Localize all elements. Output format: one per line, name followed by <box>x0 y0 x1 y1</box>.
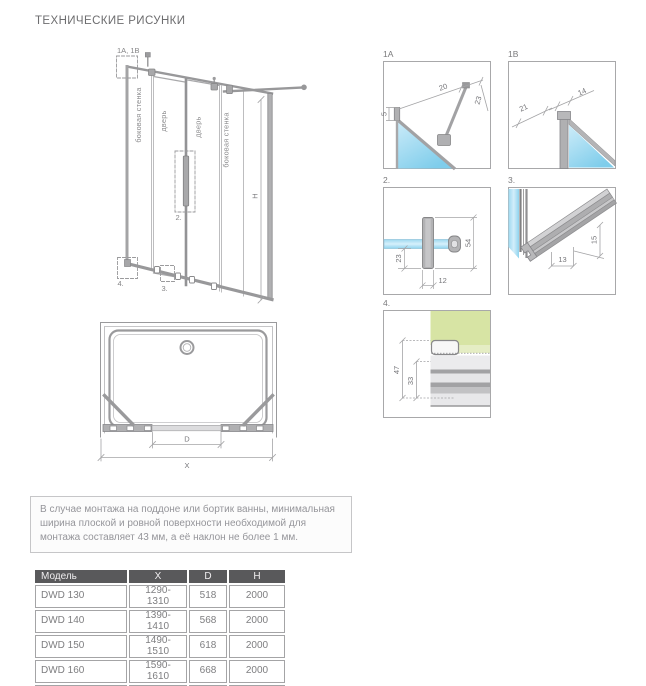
detail-4: 4. 47 <box>383 298 491 418</box>
bottom-rail <box>127 264 272 300</box>
technical-drawing-page: ТЕХНИЧЕСКИЕ РИСУНКИ <box>0 0 646 686</box>
front-view-drawing: H 1A, 1B 2. 3. 4. боковая стенка дверь д… <box>117 46 307 303</box>
cell-model: DWD 130 <box>35 585 127 608</box>
cell-h: 2000 <box>229 610 285 633</box>
cell-x: 1390-1410 <box>129 610 187 633</box>
dim-label-h: H <box>251 193 260 198</box>
cell-x: 1490-1510 <box>129 635 187 658</box>
detail-1b: 1B 14 21 <box>508 49 616 169</box>
cell-model: DWD 140 <box>35 610 127 633</box>
cell-h: 2000 <box>229 585 285 608</box>
cell-x: 1290-1310 <box>129 585 187 608</box>
col-header-h: H <box>229 570 285 583</box>
door-track-bar <box>103 425 273 432</box>
col-header-x: X <box>129 570 187 583</box>
spec-table: Модель X D H DWD 130 1290-1310 518 2000 … <box>33 568 287 686</box>
ref-label-4: 4. <box>118 279 124 288</box>
detail-4-label: 4. <box>383 298 390 308</box>
cell-x: 1590-1610 <box>129 660 187 683</box>
shower-tray <box>110 331 267 427</box>
dim-label-33: 33 <box>406 377 415 385</box>
detail-2: 2. 54 23 12 <box>383 175 491 295</box>
rail-layers <box>431 356 491 407</box>
detail-2-label: 2. <box>383 175 390 185</box>
dim-height <box>258 97 264 304</box>
label-door-2: дверь <box>194 116 203 137</box>
dim-label-12: 12 <box>439 276 447 285</box>
dim-label-54: 54 <box>464 239 473 247</box>
top-view-drawing: D X <box>98 323 277 471</box>
drain-icon <box>181 341 194 354</box>
detail-1b-label: 1B <box>508 49 519 59</box>
cell-model: DWD 160 <box>35 660 127 683</box>
detail-3-label: 3. <box>508 175 515 185</box>
table-row: DWD 140 1390-1410 568 2000 <box>35 610 285 633</box>
dim-label-d: D <box>184 435 190 444</box>
col-header-model: Модель <box>35 570 127 583</box>
dim-label-15: 15 <box>590 236 599 244</box>
label-side-wall-right: боковая стенка <box>222 112 231 167</box>
ref-label-1a1b: 1A, 1B <box>117 46 140 55</box>
cell-h: 2000 <box>229 635 285 658</box>
label-door-1: дверь <box>159 110 168 131</box>
detail-1a: 1A 5 20 23 <box>380 49 491 169</box>
label-side-wall-left: боковая стенка <box>134 87 143 142</box>
glass-section <box>384 240 449 249</box>
table-row: DWD 160 1590-1610 668 2000 <box>35 660 285 683</box>
table-header-row: Модель X D H <box>35 570 285 583</box>
installation-note: В случае монтажа на поддоне или бортик в… <box>30 496 352 553</box>
cell-d: 518 <box>189 585 227 608</box>
glass-edge <box>509 189 520 259</box>
mount-tab <box>432 341 459 355</box>
dim-label-13: 13 <box>558 255 566 264</box>
detail-3: 3. 13 15 <box>508 175 617 295</box>
ref-label-2: 2. <box>176 213 182 222</box>
ref-label-3: 3. <box>162 284 168 293</box>
dim-label-5: 5 <box>380 112 389 116</box>
cell-h: 2000 <box>229 660 285 683</box>
col-header-d: D <box>189 570 227 583</box>
right-wall-profile <box>268 94 272 300</box>
door-handle <box>183 156 188 206</box>
cell-d: 618 <box>189 635 227 658</box>
cell-model: DWD 150 <box>35 635 127 658</box>
dim-label-x: X <box>184 461 189 470</box>
detail-1a-label: 1A <box>383 49 394 59</box>
dim-label-23b: 23 <box>394 254 403 262</box>
dim-label-47: 47 <box>392 366 401 374</box>
table-row: DWD 130 1290-1310 518 2000 <box>35 585 285 608</box>
brace-right <box>244 396 273 425</box>
table-row: DWD 150 1490-1510 618 2000 <box>35 635 285 658</box>
cell-d: 668 <box>189 660 227 683</box>
cell-d: 568 <box>189 610 227 633</box>
